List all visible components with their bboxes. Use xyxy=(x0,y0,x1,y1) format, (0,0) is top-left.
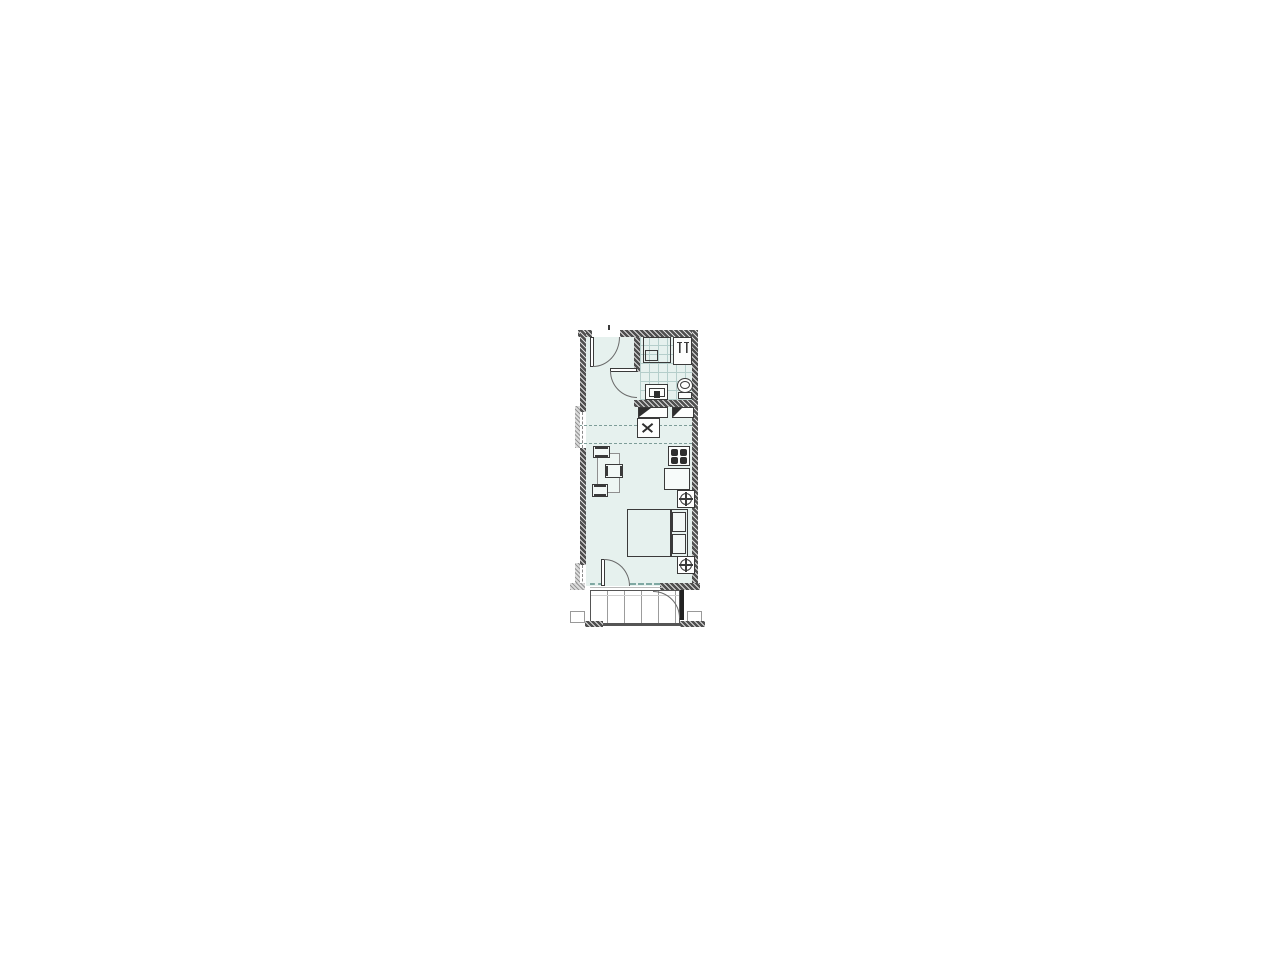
shower-tray xyxy=(643,337,671,363)
cabinet-swing-mark xyxy=(673,408,682,417)
neighbor-balcony-fragment-left xyxy=(570,611,585,623)
balcony-parapet-stub-left xyxy=(585,621,603,627)
bathroom-kitchen-wall xyxy=(634,400,698,407)
shower-drain-square xyxy=(645,350,658,361)
service-symbol-upper xyxy=(677,490,695,508)
window-sill-line xyxy=(590,587,662,588)
floor-plan xyxy=(565,320,715,640)
glazing-segment-right xyxy=(630,583,660,585)
bathroom-sink xyxy=(645,384,668,400)
kitchen-cabinet-left xyxy=(638,407,668,418)
bathroom-partition-wall xyxy=(634,337,640,372)
left-wall-upper xyxy=(580,330,586,412)
burner-icon xyxy=(671,457,678,464)
toilet-bowl-inner xyxy=(680,381,690,389)
toilet xyxy=(676,378,694,400)
balcony-railing-line xyxy=(603,624,680,626)
toilet-tank xyxy=(678,392,692,399)
burner-icon xyxy=(671,449,678,456)
kitchen-cabinet-right xyxy=(672,407,694,418)
chair xyxy=(592,484,608,497)
washing-machine xyxy=(673,337,692,365)
service-symbol-lower xyxy=(677,556,695,574)
faucet-icon xyxy=(654,391,660,398)
burner-icon xyxy=(680,457,687,464)
valve-icon xyxy=(677,342,682,353)
bottom-wall-right xyxy=(660,583,700,590)
left-wall-opening-dashed xyxy=(582,412,583,448)
valve-icon xyxy=(684,342,689,353)
pillow xyxy=(672,512,686,532)
burner-icon xyxy=(680,449,687,456)
tall-cabinet xyxy=(664,468,690,490)
neighbor-wall-fragment-upper xyxy=(575,406,580,448)
balcony-parapet-stub-right xyxy=(680,621,705,627)
ceiling-change-line-lower xyxy=(579,443,692,444)
neighbor-glazing-stub-left xyxy=(570,583,585,590)
balcony-partition-door-leaf xyxy=(680,590,684,620)
cabinet-swing-mark xyxy=(639,408,651,417)
chair xyxy=(605,464,623,478)
chair xyxy=(593,446,610,458)
right-wall xyxy=(692,330,698,590)
left-wall-lower xyxy=(580,448,586,565)
stove xyxy=(668,446,690,466)
top-wall-right xyxy=(620,330,698,337)
kitchen-sink xyxy=(637,418,660,438)
ceiling-change-line-upper xyxy=(579,425,692,426)
bed xyxy=(627,509,688,557)
pillow xyxy=(672,534,686,554)
top-wall-tick xyxy=(608,325,610,330)
